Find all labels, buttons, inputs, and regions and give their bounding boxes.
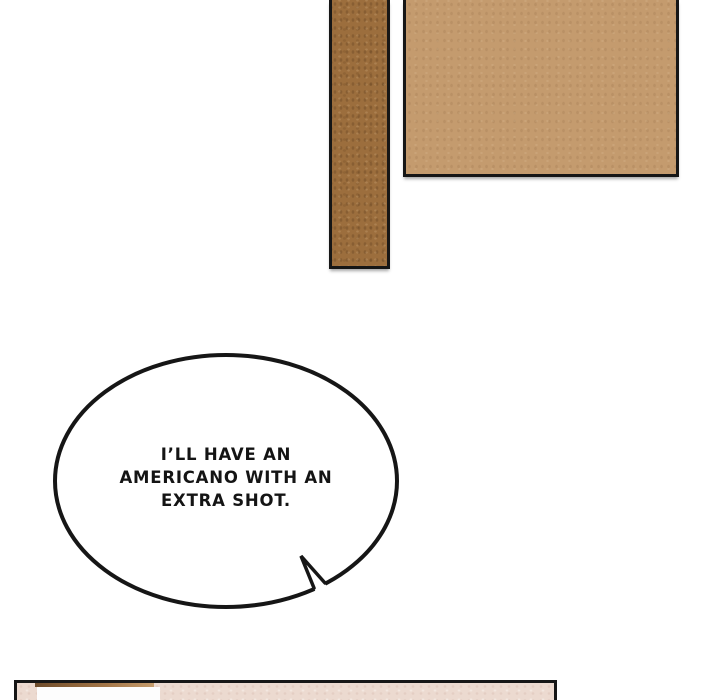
bubble-tail-outline bbox=[301, 556, 325, 588]
speech-line: EXTRA SHOT. bbox=[46, 489, 406, 512]
bubble-tail-fill bbox=[301, 556, 325, 588]
bottom-panel bbox=[14, 680, 557, 700]
white-card bbox=[37, 687, 160, 700]
speech-line: I’LL HAVE AN bbox=[46, 443, 406, 466]
bubble-tail-gap bbox=[314, 583, 325, 588]
wood-beam-panel bbox=[329, 0, 390, 269]
wood-board-panel bbox=[403, 0, 679, 177]
comic-strip-page: I’LL HAVE AN AMERICANO WITH AN EXTRA SHO… bbox=[0, 0, 720, 700]
speech-line: AMERICANO WITH AN bbox=[46, 466, 406, 489]
speech-bubble-text: I’LL HAVE AN AMERICANO WITH AN EXTRA SHO… bbox=[46, 443, 406, 512]
